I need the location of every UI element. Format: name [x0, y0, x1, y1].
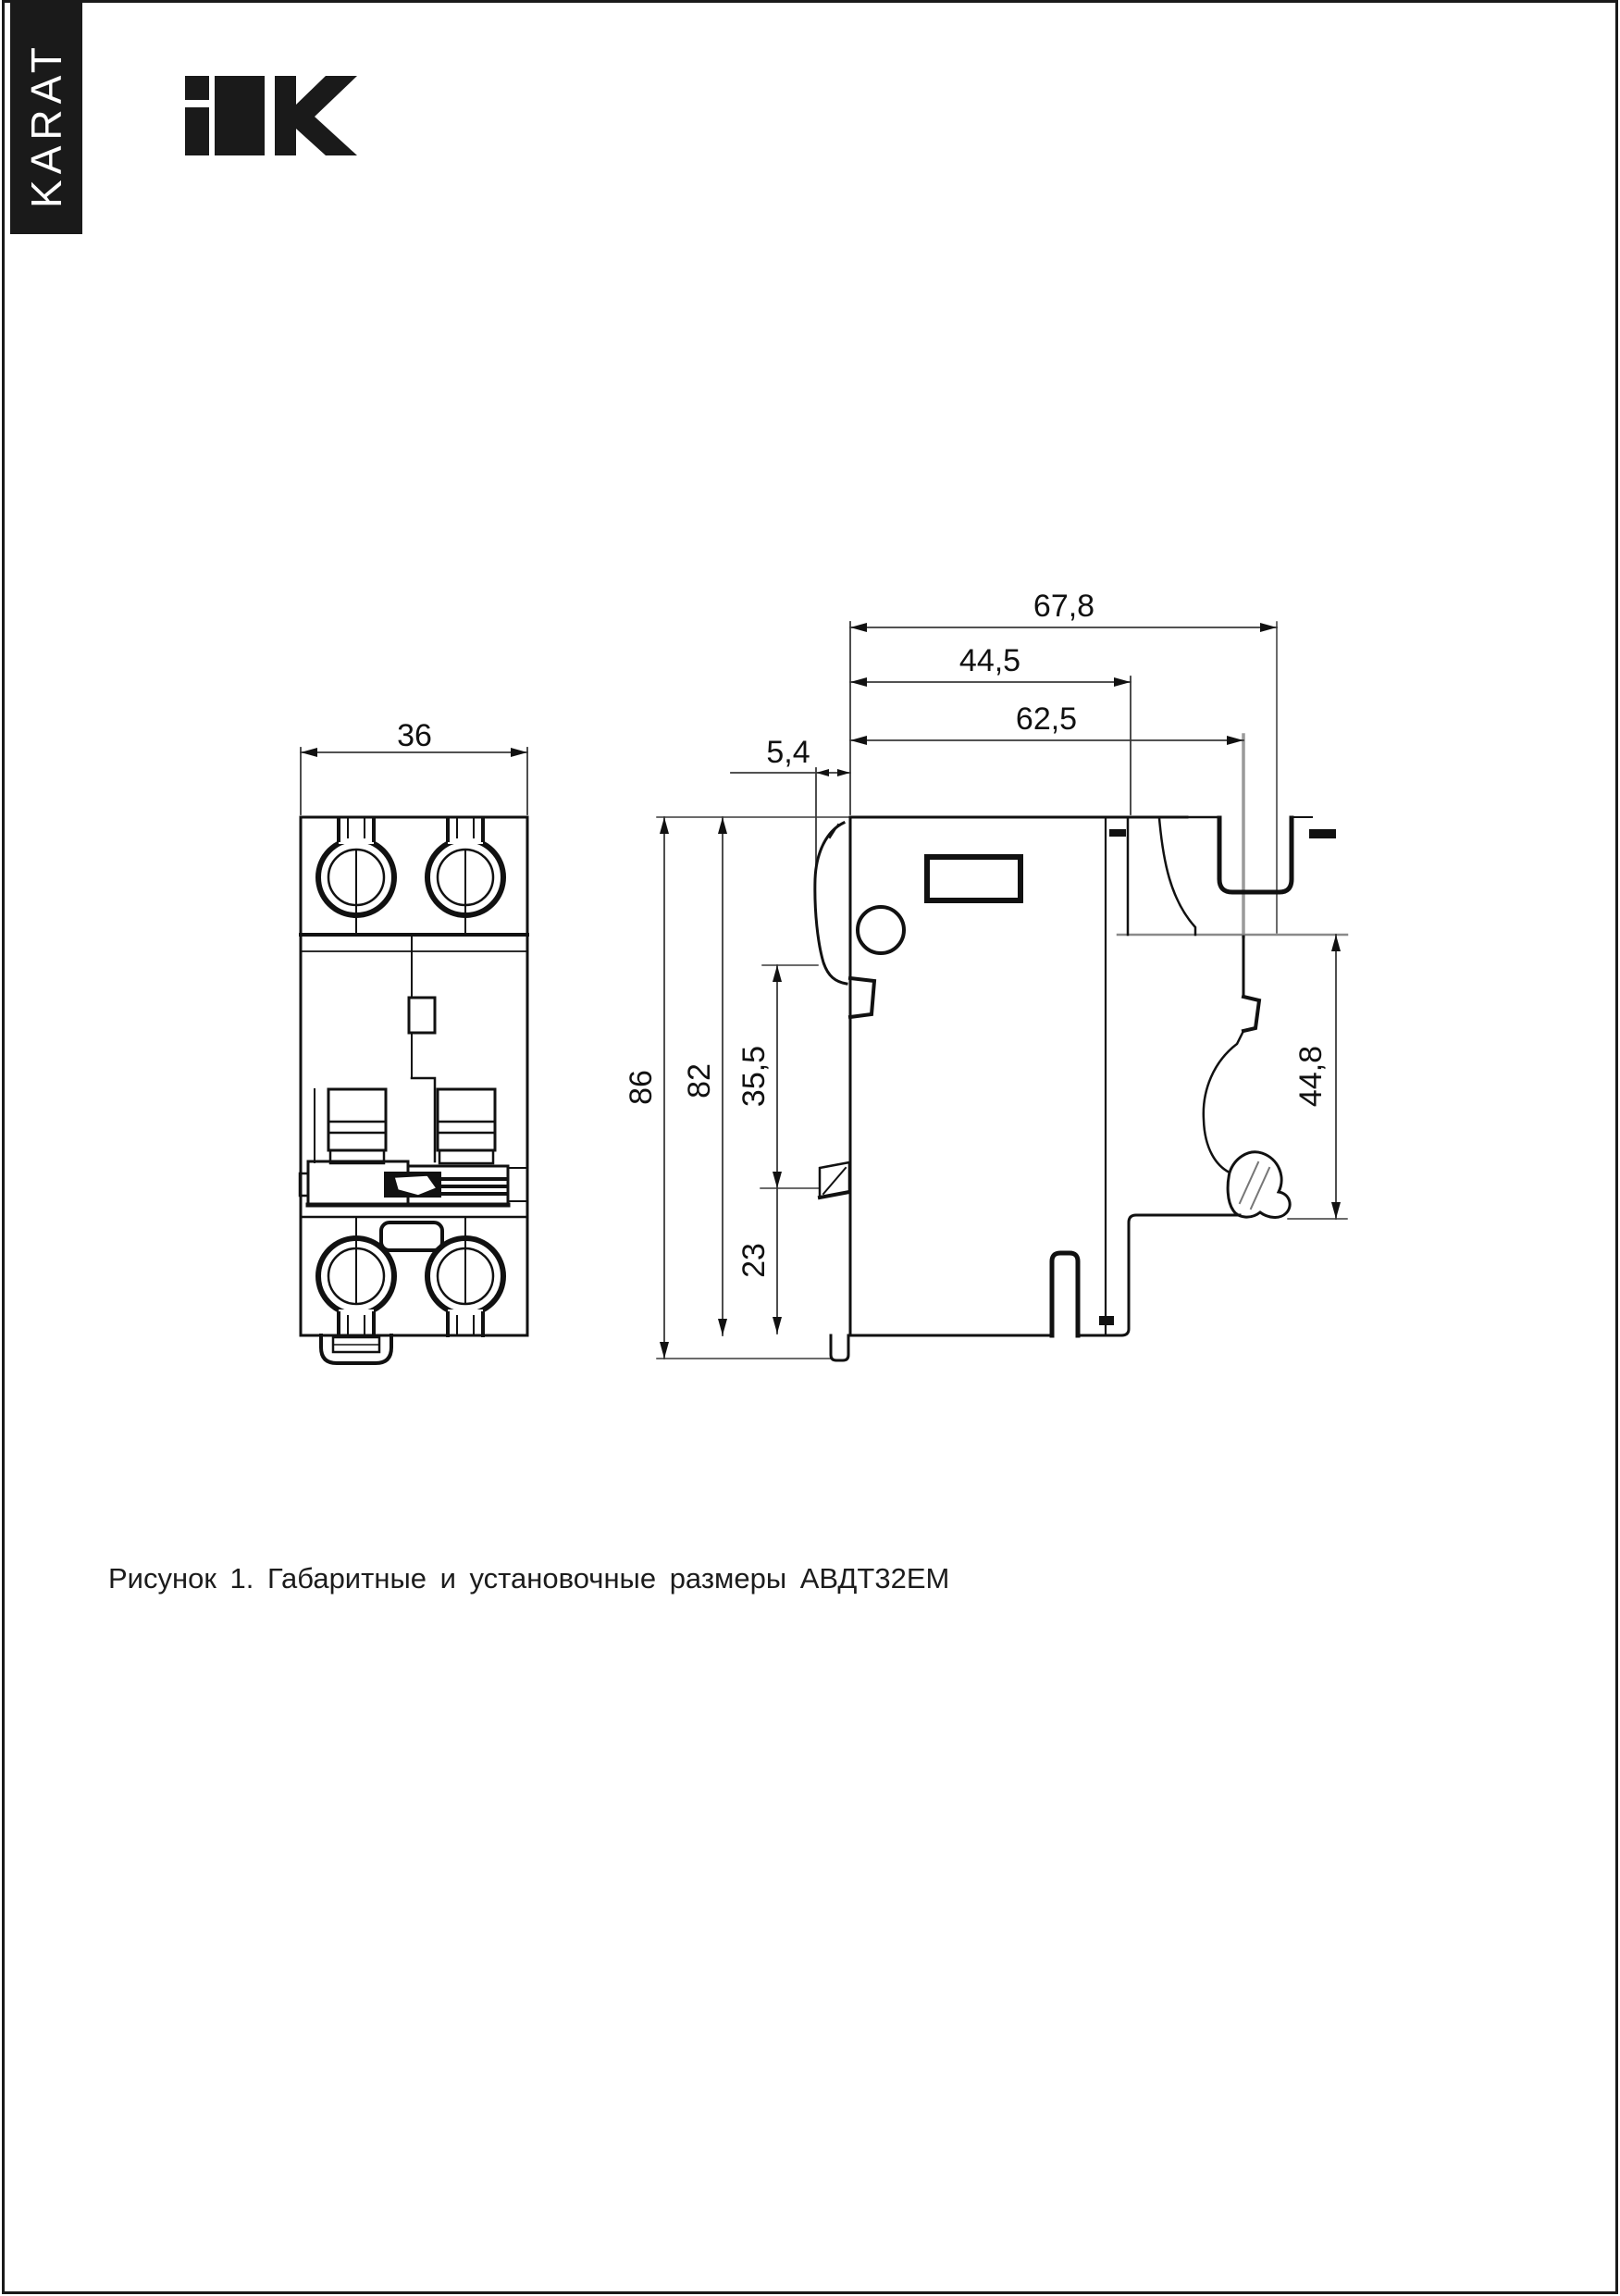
side-dim-35-5: 35,5 — [736, 965, 818, 1188]
side-body-outline — [815, 817, 1336, 1360]
dim-label-82: 82 — [682, 1063, 717, 1098]
dim-label-44-5: 44,5 — [959, 643, 1020, 678]
side-label-window — [927, 857, 1020, 900]
dim-label-36: 36 — [397, 718, 432, 753]
catalog-page: KARAT — [0, 0, 1620, 2296]
side-dim-5-4: 5,4 — [731, 735, 850, 870]
dim-label-86: 86 — [624, 1070, 659, 1105]
front-toggle-lever — [300, 1161, 527, 1205]
side-din-recess — [1204, 1031, 1243, 1173]
dim-label-67-8: 67,8 — [1033, 589, 1094, 624]
side-dim-44-5: 44,5 — [850, 643, 1131, 814]
side-test-button — [858, 907, 904, 953]
side-dim-44-8: 44,8 — [1118, 935, 1347, 1219]
front-mid-details — [315, 935, 435, 1162]
dim-label-35-5: 35,5 — [736, 1046, 772, 1107]
front-test-button — [381, 1222, 442, 1250]
dim-label-44-8: 44,8 — [1293, 1046, 1329, 1107]
front-terminal-top-right — [427, 818, 503, 935]
side-bottom-slot — [1052, 1253, 1078, 1335]
side-dim-62-5: 62,5 — [850, 701, 1243, 937]
dim-label-23: 23 — [736, 1243, 772, 1278]
side-rear-top-slot — [1219, 818, 1292, 892]
front-din-clip — [321, 1335, 391, 1363]
dimension-drawing: 36 — [0, 0, 1620, 2296]
side-dim-23: 23 — [736, 1188, 820, 1334]
side-dim-82: 82 — [682, 817, 727, 1335]
figure-caption: Рисунок 1. Габаритные и установочные раз… — [108, 1562, 949, 1595]
front-toggle-blocks — [328, 1089, 495, 1163]
side-front-lip — [831, 1335, 848, 1360]
front-dim-width: 36 — [301, 718, 527, 814]
front-terminal-top-left — [318, 818, 394, 935]
dim-label-62-5: 62,5 — [1016, 701, 1077, 737]
front-view: 36 — [300, 718, 527, 1363]
dim-label-5-4: 5,4 — [766, 735, 810, 770]
side-rear-tab — [1309, 829, 1336, 838]
side-din-tooth — [1243, 997, 1259, 1031]
side-view: 67,8 44,5 62,5 5,4 — [624, 589, 1347, 1360]
side-lever — [815, 823, 847, 984]
front-terminal-bottom-right — [427, 1219, 503, 1335]
side-latch — [850, 978, 874, 1017]
side-dim-67-8: 67,8 — [850, 589, 1277, 933]
